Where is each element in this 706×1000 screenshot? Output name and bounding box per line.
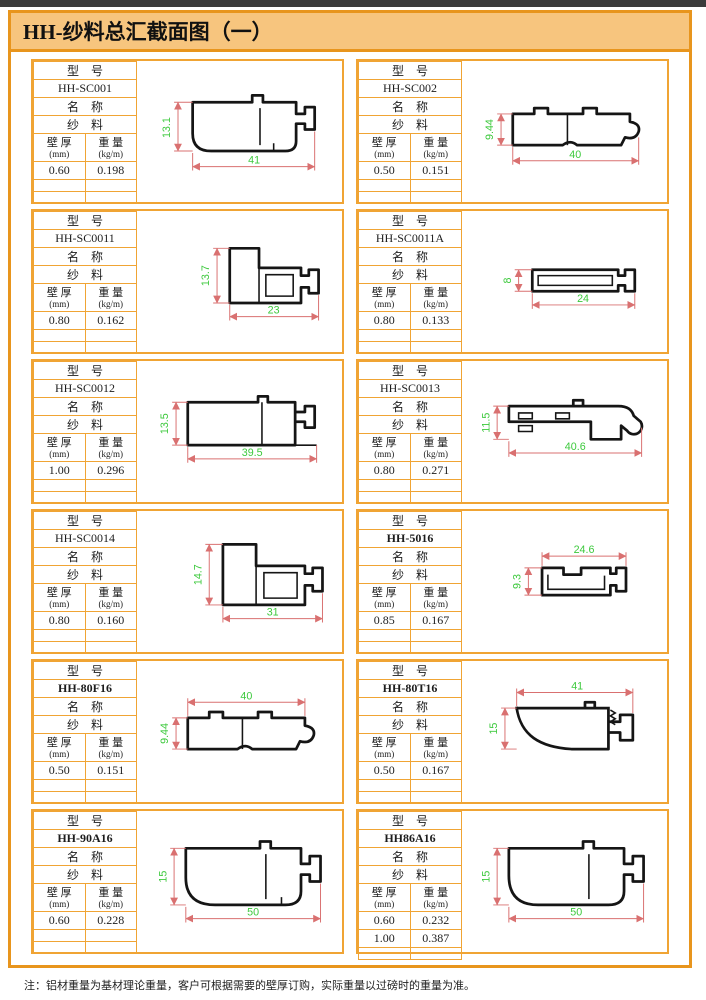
- empty-cell: [34, 642, 86, 654]
- profile-shape: [223, 544, 323, 605]
- name-label-cell: 名 称: [359, 248, 462, 266]
- wall-header-cell: 壁 厚(mm): [34, 884, 86, 912]
- model-value-cell: HH-80T16: [359, 680, 462, 698]
- weight-value-cell: 0.232: [410, 912, 462, 930]
- width-dim-label: 39.5: [242, 447, 263, 459]
- model-value-cell: HH-SC0013: [359, 380, 462, 398]
- empty-cell: [85, 192, 137, 204]
- model-value-cell: HH-80F16: [34, 680, 137, 698]
- empty-cell: [359, 342, 411, 354]
- wall-value-cell: 0.60: [34, 912, 86, 930]
- empty-cell: [34, 180, 86, 192]
- width-dim-label: 23: [268, 305, 280, 317]
- weight-header-cell: 重 量(kg/m): [85, 734, 137, 762]
- model-value-cell: HH-SC0014: [34, 530, 137, 548]
- wall-value-cell: 1.00: [34, 462, 86, 480]
- material-cell: 纱 料: [34, 266, 137, 284]
- weight-value-cell: 0.133: [410, 312, 462, 330]
- weight-value-cell: 0.160: [85, 612, 137, 630]
- weight-value-cell: 0.162: [85, 312, 137, 330]
- width-dim-label: 40: [240, 690, 252, 702]
- empty-cell: [359, 792, 411, 804]
- weight-value-cell: 0.167: [410, 762, 462, 780]
- material-cell: 纱 料: [34, 416, 137, 434]
- wall-header-cell: 壁 厚(mm): [34, 434, 86, 462]
- name-label-cell: 名 称: [359, 548, 462, 566]
- profile-cell-sc001: 型 号 HH-SC001 名 称 纱 料 壁 厚(mm) 重 量(kg/m) 0…: [31, 59, 344, 204]
- weight-value-cell: 0.167: [410, 612, 462, 630]
- weight-value-cell: 0.151: [85, 762, 137, 780]
- wall-value-cell: 0.80: [34, 312, 86, 330]
- profile-drawing-sc0013: 11.5 40.6: [462, 361, 667, 502]
- dimensions: 13.5 39.5: [159, 402, 316, 463]
- empty-cell: [34, 942, 86, 954]
- profile-shape: [517, 702, 633, 749]
- empty-cell: [34, 492, 86, 504]
- wall-value-cell: 0.50: [34, 762, 86, 780]
- height-dim-label: 9.3: [512, 574, 524, 589]
- profile-shape: [188, 712, 314, 749]
- drawing-area: 9.3 24.6: [462, 511, 667, 652]
- height-dim-label: 15: [157, 871, 169, 883]
- material-cell: 纱 料: [359, 866, 462, 884]
- width-dim-label: 50: [247, 907, 259, 919]
- weight-header-cell: 重 量(kg/m): [410, 884, 462, 912]
- empty-cell: [85, 342, 137, 354]
- profile-cell-sc0013: 型 号 HH-SC0013 名 称 纱 料 壁 厚(mm) 重 量(kg/m) …: [356, 359, 669, 504]
- height-dim-label: 9.44: [159, 723, 171, 744]
- model-label-cell: 型 号: [359, 512, 462, 530]
- spec-table: 型 号 HH-80T16 名 称 纱 料 壁 厚(mm) 重 量(kg/m) 0…: [358, 661, 462, 804]
- weight-header-cell: 重 量(kg/m): [410, 584, 462, 612]
- spec-table: 型 号 HH-5016 名 称 纱 料 壁 厚(mm) 重 量(kg/m) 0.…: [358, 511, 462, 654]
- profile-shape: [542, 568, 626, 595]
- weight-header-cell: 重 量(kg/m): [85, 434, 137, 462]
- profile-shape: [230, 248, 319, 303]
- wall-value-cell: 0.80: [359, 462, 411, 480]
- spec-table: 型 号 HH-SC0014 名 称 纱 料 壁 厚(mm) 重 量(kg/m) …: [33, 511, 137, 654]
- wall-value-cell: 0.60: [34, 162, 86, 180]
- model-value-cell: HH-5016: [359, 530, 462, 548]
- model-value-cell: HH-SC0011A: [359, 230, 462, 248]
- model-label-cell: 型 号: [34, 662, 137, 680]
- drawing-area: 13.5 39.5: [137, 361, 342, 502]
- width-dim-label: 24.6: [574, 544, 595, 556]
- empty-cell: [410, 330, 462, 342]
- model-label-cell: 型 号: [34, 62, 137, 80]
- name-label-cell: 名 称: [359, 698, 462, 716]
- wall-header-cell: 壁 厚(mm): [34, 734, 86, 762]
- dimensions: 13.1 41: [161, 102, 314, 170]
- drawing-area: 9.44 40: [137, 661, 342, 802]
- height-dim-label: 13.1: [161, 117, 173, 138]
- profile-shape: [509, 841, 644, 904]
- weight-header-cell: 重 量(kg/m): [85, 284, 137, 312]
- wall-value-cell: 0.60: [359, 912, 411, 930]
- material-cell: 纱 料: [34, 566, 137, 584]
- drawing-area: 13.7 23: [137, 211, 342, 352]
- material-cell: 纱 料: [359, 716, 462, 734]
- spec-table: 型 号 HH-SC0011A 名 称 纱 料 壁 厚(mm) 重 量(kg/m)…: [358, 211, 462, 354]
- empty-cell: [34, 480, 86, 492]
- width-dim-label: 31: [267, 607, 279, 619]
- empty-cell: [85, 330, 137, 342]
- model-value-cell: HH-SC0011: [34, 230, 137, 248]
- name-label-cell: 名 称: [359, 98, 462, 116]
- height-dim-label: 15: [488, 723, 500, 735]
- dimensions: 9.44 40: [159, 690, 305, 749]
- name-label-cell: 名 称: [34, 548, 137, 566]
- wall-header-cell: 壁 厚(mm): [359, 734, 411, 762]
- material-cell: 纱 料: [359, 266, 462, 284]
- height-dim-label: 8: [502, 278, 514, 284]
- material-cell: 纱 料: [34, 866, 137, 884]
- height-dim-label: 9.44: [484, 119, 496, 140]
- weight-header-cell: 重 量(kg/m): [85, 884, 137, 912]
- empty-cell: [410, 780, 462, 792]
- empty-cell: [410, 792, 462, 804]
- width-dim-label: 41: [248, 155, 260, 167]
- empty-cell: [359, 630, 411, 642]
- wall-value-cell: 0.80: [359, 312, 411, 330]
- material-cell: 纱 料: [359, 116, 462, 134]
- profile-cell-5016: 型 号 HH-5016 名 称 纱 料 壁 厚(mm) 重 量(kg/m) 0.…: [356, 509, 669, 654]
- empty-cell: [34, 330, 86, 342]
- empty-cell: [34, 342, 86, 354]
- weight-header-cell: 重 量(kg/m): [410, 284, 462, 312]
- empty-cell: [85, 480, 137, 492]
- wall-header-cell: 壁 厚(mm): [359, 134, 411, 162]
- width-dim-label: 40: [569, 149, 581, 161]
- dimensions: 11.5 40.6: [480, 406, 641, 457]
- spec-table: 型 号 HH-SC002 名 称 纱 料 壁 厚(mm) 重 量(kg/m) 0…: [358, 61, 462, 204]
- model-label-cell: 型 号: [34, 212, 137, 230]
- wall-header-cell: 壁 厚(mm): [359, 884, 411, 912]
- empty-cell: [85, 942, 137, 954]
- page-title: HH-纱料总汇截面图（一）: [23, 16, 273, 46]
- width-dim-label: 24: [577, 293, 589, 305]
- page-frame: HH-纱料总汇截面图（一） 型 号 HH-SC001 名 称 纱 料 壁 厚(m…: [8, 10, 692, 968]
- dimensions: 15 50: [480, 848, 643, 922]
- width-dim-label: 40.6: [565, 441, 586, 453]
- model-label-cell: 型 号: [34, 362, 137, 380]
- drawing-area: 15 50: [462, 811, 667, 952]
- drawing-area: 13.1 41: [137, 61, 342, 202]
- wall-header-cell: 壁 厚(mm): [359, 584, 411, 612]
- name-label-cell: 名 称: [34, 398, 137, 416]
- width-dim-label: 50: [570, 907, 582, 919]
- spec-table: 型 号 HH-SC0013 名 称 纱 料 壁 厚(mm) 重 量(kg/m) …: [358, 361, 462, 504]
- spec-table: 型 号 HH-SC0011 名 称 纱 料 壁 厚(mm) 重 量(kg/m) …: [33, 211, 137, 354]
- profile-drawing-sc0014: 14.7 31: [137, 511, 342, 652]
- wall-value-cell: 0.85: [359, 612, 411, 630]
- empty-cell: [410, 192, 462, 204]
- material-cell: 纱 料: [34, 116, 137, 134]
- profile-cell-sc0012: 型 号 HH-SC0012 名 称 纱 料 壁 厚(mm) 重 量(kg/m) …: [31, 359, 344, 504]
- drawing-area: 14.7 31: [137, 511, 342, 652]
- name-label-cell: 名 称: [34, 98, 137, 116]
- empty-cell: [85, 930, 137, 942]
- wall-value-cell: 0.80: [34, 612, 86, 630]
- profile-drawing-86a16: 15 50: [462, 811, 667, 952]
- empty-cell: [359, 642, 411, 654]
- profile-cell-86a16: 型 号 HH86A16 名 称 纱 料 壁 厚(mm) 重 量(kg/m) 0.…: [356, 809, 669, 954]
- weight-value-cell: 0.151: [410, 162, 462, 180]
- empty-cell: [85, 792, 137, 804]
- width-dim-label: 41: [571, 681, 583, 693]
- weight-value-cell-2: 0.387: [410, 930, 462, 948]
- model-label-cell: 型 号: [34, 512, 137, 530]
- weight-value-cell: 0.271: [410, 462, 462, 480]
- empty-cell: [410, 342, 462, 354]
- profile-shape: [532, 270, 635, 291]
- weight-header-cell: 重 量(kg/m): [410, 134, 462, 162]
- empty-cell: [34, 192, 86, 204]
- profile-shape: [186, 841, 321, 904]
- height-dim-label: 15: [480, 871, 492, 883]
- name-label-cell: 名 称: [34, 248, 137, 266]
- name-label-cell: 名 称: [34, 848, 137, 866]
- profile-cell-sc0014: 型 号 HH-SC0014 名 称 纱 料 壁 厚(mm) 重 量(kg/m) …: [31, 509, 344, 654]
- weight-header-cell: 重 量(kg/m): [410, 434, 462, 462]
- material-cell: 纱 料: [359, 566, 462, 584]
- profile-shape: [513, 108, 639, 145]
- model-label-cell: 型 号: [359, 212, 462, 230]
- profile-cell-sc002: 型 号 HH-SC002 名 称 纱 料 壁 厚(mm) 重 量(kg/m) 0…: [356, 59, 669, 204]
- empty-cell: [410, 492, 462, 504]
- profile-cell-sc0011a: 型 号 HH-SC0011A 名 称 纱 料 壁 厚(mm) 重 量(kg/m)…: [356, 209, 669, 354]
- wall-value-cell: 0.50: [359, 162, 411, 180]
- profile-drawing-80f16: 9.44 40: [137, 661, 342, 802]
- empty-cell: [410, 948, 462, 960]
- profile-shape: [188, 396, 317, 445]
- profile-cell-90a16: 型 号 HH-90A16 名 称 纱 料 壁 厚(mm) 重 量(kg/m) 0…: [31, 809, 344, 954]
- empty-cell: [359, 480, 411, 492]
- profile-drawing-sc0012: 13.5 39.5: [137, 361, 342, 502]
- drawing-area: 9.44 40: [462, 61, 667, 202]
- profile-drawing-90a16: 15 50: [137, 811, 342, 952]
- name-label-cell: 名 称: [359, 848, 462, 866]
- model-label-cell: 型 号: [359, 812, 462, 830]
- model-label-cell: 型 号: [359, 62, 462, 80]
- wall-header-cell: 壁 厚(mm): [359, 434, 411, 462]
- weight-value-cell: 0.296: [85, 462, 137, 480]
- empty-cell: [410, 480, 462, 492]
- empty-cell: [359, 492, 411, 504]
- dimensions: 9.44 40: [484, 114, 638, 165]
- weight-value-cell: 0.228: [85, 912, 137, 930]
- wall-value-cell-2: 1.00: [359, 930, 411, 948]
- empty-cell: [34, 792, 86, 804]
- empty-cell: [359, 780, 411, 792]
- profile-cell-sc0011: 型 号 HH-SC0011 名 称 纱 料 壁 厚(mm) 重 量(kg/m) …: [31, 209, 344, 354]
- profile-drawing-sc001: 13.1 41: [137, 61, 342, 202]
- scan-top-edge: [0, 0, 706, 7]
- height-dim-label: 13.7: [200, 265, 212, 286]
- material-cell: 纱 料: [34, 716, 137, 734]
- empty-cell: [85, 180, 137, 192]
- model-value-cell: HH-SC0012: [34, 380, 137, 398]
- spec-table: 型 号 HH-SC0012 名 称 纱 料 壁 厚(mm) 重 量(kg/m) …: [33, 361, 137, 504]
- drawing-area: 8 24: [462, 211, 667, 352]
- profile-drawing-80t16: 15 41: [462, 661, 667, 802]
- name-label-cell: 名 称: [359, 398, 462, 416]
- empty-cell: [85, 780, 137, 792]
- drawing-area: 11.5 40.6: [462, 361, 667, 502]
- profile-shape: [509, 400, 642, 439]
- dimensions: 15 50: [157, 848, 320, 922]
- empty-cell: [34, 930, 86, 942]
- empty-cell: [34, 630, 86, 642]
- profile-cell-80f16: 型 号 HH-80F16 名 称 纱 料 壁 厚(mm) 重 量(kg/m) 0…: [31, 659, 344, 804]
- drawing-area: 15 50: [137, 811, 342, 952]
- height-dim-label: 13.5: [159, 413, 171, 434]
- empty-cell: [410, 642, 462, 654]
- height-dim-label: 14.7: [192, 564, 204, 585]
- profile-shape: [193, 95, 315, 151]
- title-bar: HH-纱料总汇截面图（一）: [11, 13, 689, 52]
- model-label-cell: 型 号: [359, 362, 462, 380]
- dimensions: 9.3 24.6: [512, 544, 626, 595]
- spec-table: 型 号 HH-SC001 名 称 纱 料 壁 厚(mm) 重 量(kg/m) 0…: [33, 61, 137, 204]
- weight-header-cell: 重 量(kg/m): [85, 584, 137, 612]
- drawing-area: 15 41: [462, 661, 667, 802]
- spec-table: 型 号 HH86A16 名 称 纱 料 壁 厚(mm) 重 量(kg/m) 0.…: [358, 811, 462, 960]
- model-value-cell: HH-90A16: [34, 830, 137, 848]
- empty-cell: [34, 780, 86, 792]
- model-value-cell: HH-SC002: [359, 80, 462, 98]
- empty-cell: [85, 642, 137, 654]
- wall-header-cell: 壁 厚(mm): [34, 284, 86, 312]
- profile-drawing-sc0011a: 8 24: [462, 211, 667, 352]
- spec-table: 型 号 HH-80F16 名 称 纱 料 壁 厚(mm) 重 量(kg/m) 0…: [33, 661, 137, 804]
- empty-cell: [410, 180, 462, 192]
- height-dim-label: 11.5: [480, 413, 492, 433]
- wall-header-cell: 壁 厚(mm): [34, 584, 86, 612]
- profile-drawing-sc002: 9.44 40: [462, 61, 667, 202]
- profile-grid: 型 号 HH-SC001 名 称 纱 料 壁 厚(mm) 重 量(kg/m) 0…: [11, 52, 689, 961]
- empty-cell: [359, 948, 411, 960]
- wall-value-cell: 0.50: [359, 762, 411, 780]
- model-value-cell: HH-SC001: [34, 80, 137, 98]
- model-label-cell: 型 号: [359, 662, 462, 680]
- empty-cell: [359, 180, 411, 192]
- empty-cell: [410, 630, 462, 642]
- empty-cell: [85, 492, 137, 504]
- model-label-cell: 型 号: [34, 812, 137, 830]
- weight-value-cell: 0.198: [85, 162, 137, 180]
- footer-note: 注：铝材重量为基材理论重量，客户可根据需要的壁厚订购，实际重量以过磅时的重量为准…: [24, 977, 475, 993]
- profile-drawing-sc0011: 13.7 23: [137, 211, 342, 352]
- weight-header-cell: 重 量(kg/m): [410, 734, 462, 762]
- material-cell: 纱 料: [359, 416, 462, 434]
- profile-drawing-5016: 9.3 24.6: [462, 511, 667, 652]
- weight-header-cell: 重 量(kg/m): [85, 134, 137, 162]
- wall-header-cell: 壁 厚(mm): [359, 284, 411, 312]
- profile-cell-80t16: 型 号 HH-80T16 名 称 纱 料 壁 厚(mm) 重 量(kg/m) 0…: [356, 659, 669, 804]
- empty-cell: [359, 330, 411, 342]
- spec-table: 型 号 HH-90A16 名 称 纱 料 壁 厚(mm) 重 量(kg/m) 0…: [33, 811, 137, 954]
- model-value-cell: HH86A16: [359, 830, 462, 848]
- name-label-cell: 名 称: [34, 698, 137, 716]
- empty-cell: [359, 192, 411, 204]
- empty-cell: [85, 630, 137, 642]
- wall-header-cell: 壁 厚(mm): [34, 134, 86, 162]
